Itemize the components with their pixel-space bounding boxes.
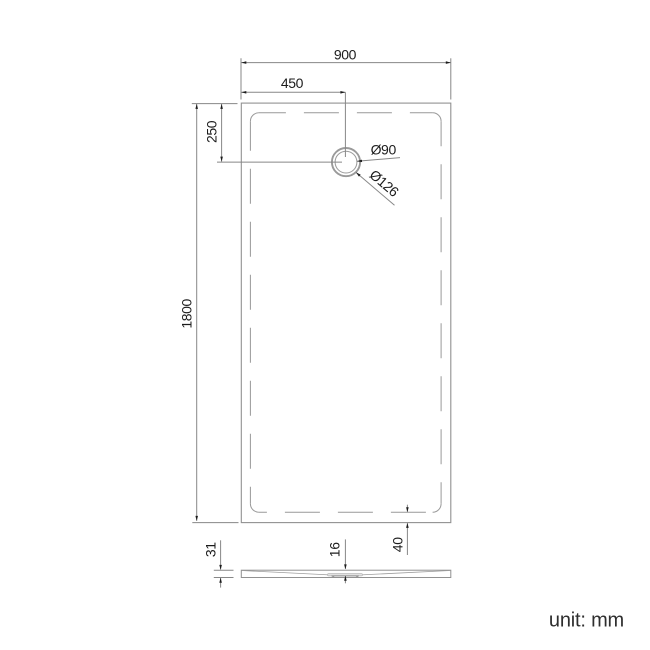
- svg-text:1800: 1800: [179, 299, 195, 329]
- svg-text:31: 31: [202, 542, 218, 557]
- svg-text:450: 450: [281, 75, 304, 91]
- svg-text:unit: mm: unit: mm: [549, 610, 624, 632]
- svg-text:16: 16: [326, 542, 342, 557]
- svg-text:900: 900: [334, 47, 357, 63]
- svg-text:250: 250: [203, 120, 219, 143]
- svg-text:40: 40: [390, 537, 406, 552]
- svg-text:Ø90: Ø90: [371, 142, 397, 158]
